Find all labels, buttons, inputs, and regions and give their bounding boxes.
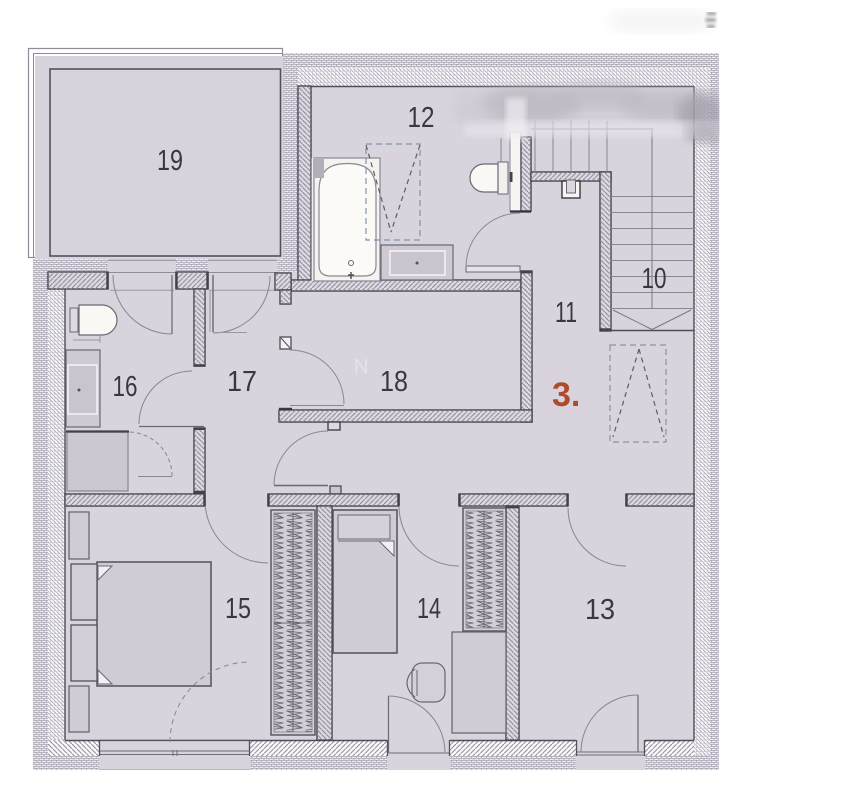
svg-text:19: 19	[157, 145, 183, 177]
svg-text:12: 12	[408, 102, 435, 134]
svg-text:10: 10	[642, 263, 667, 295]
svg-text:N: N	[354, 356, 368, 378]
svg-text:17: 17	[227, 366, 257, 398]
svg-text:3.: 3.	[552, 376, 580, 414]
svg-text:16: 16	[113, 371, 138, 403]
svg-text:13: 13	[585, 594, 615, 626]
svg-text:11: 11	[555, 297, 577, 329]
svg-text:14: 14	[417, 593, 441, 625]
svg-text:18: 18	[380, 366, 408, 398]
svg-text:15: 15	[225, 593, 251, 625]
